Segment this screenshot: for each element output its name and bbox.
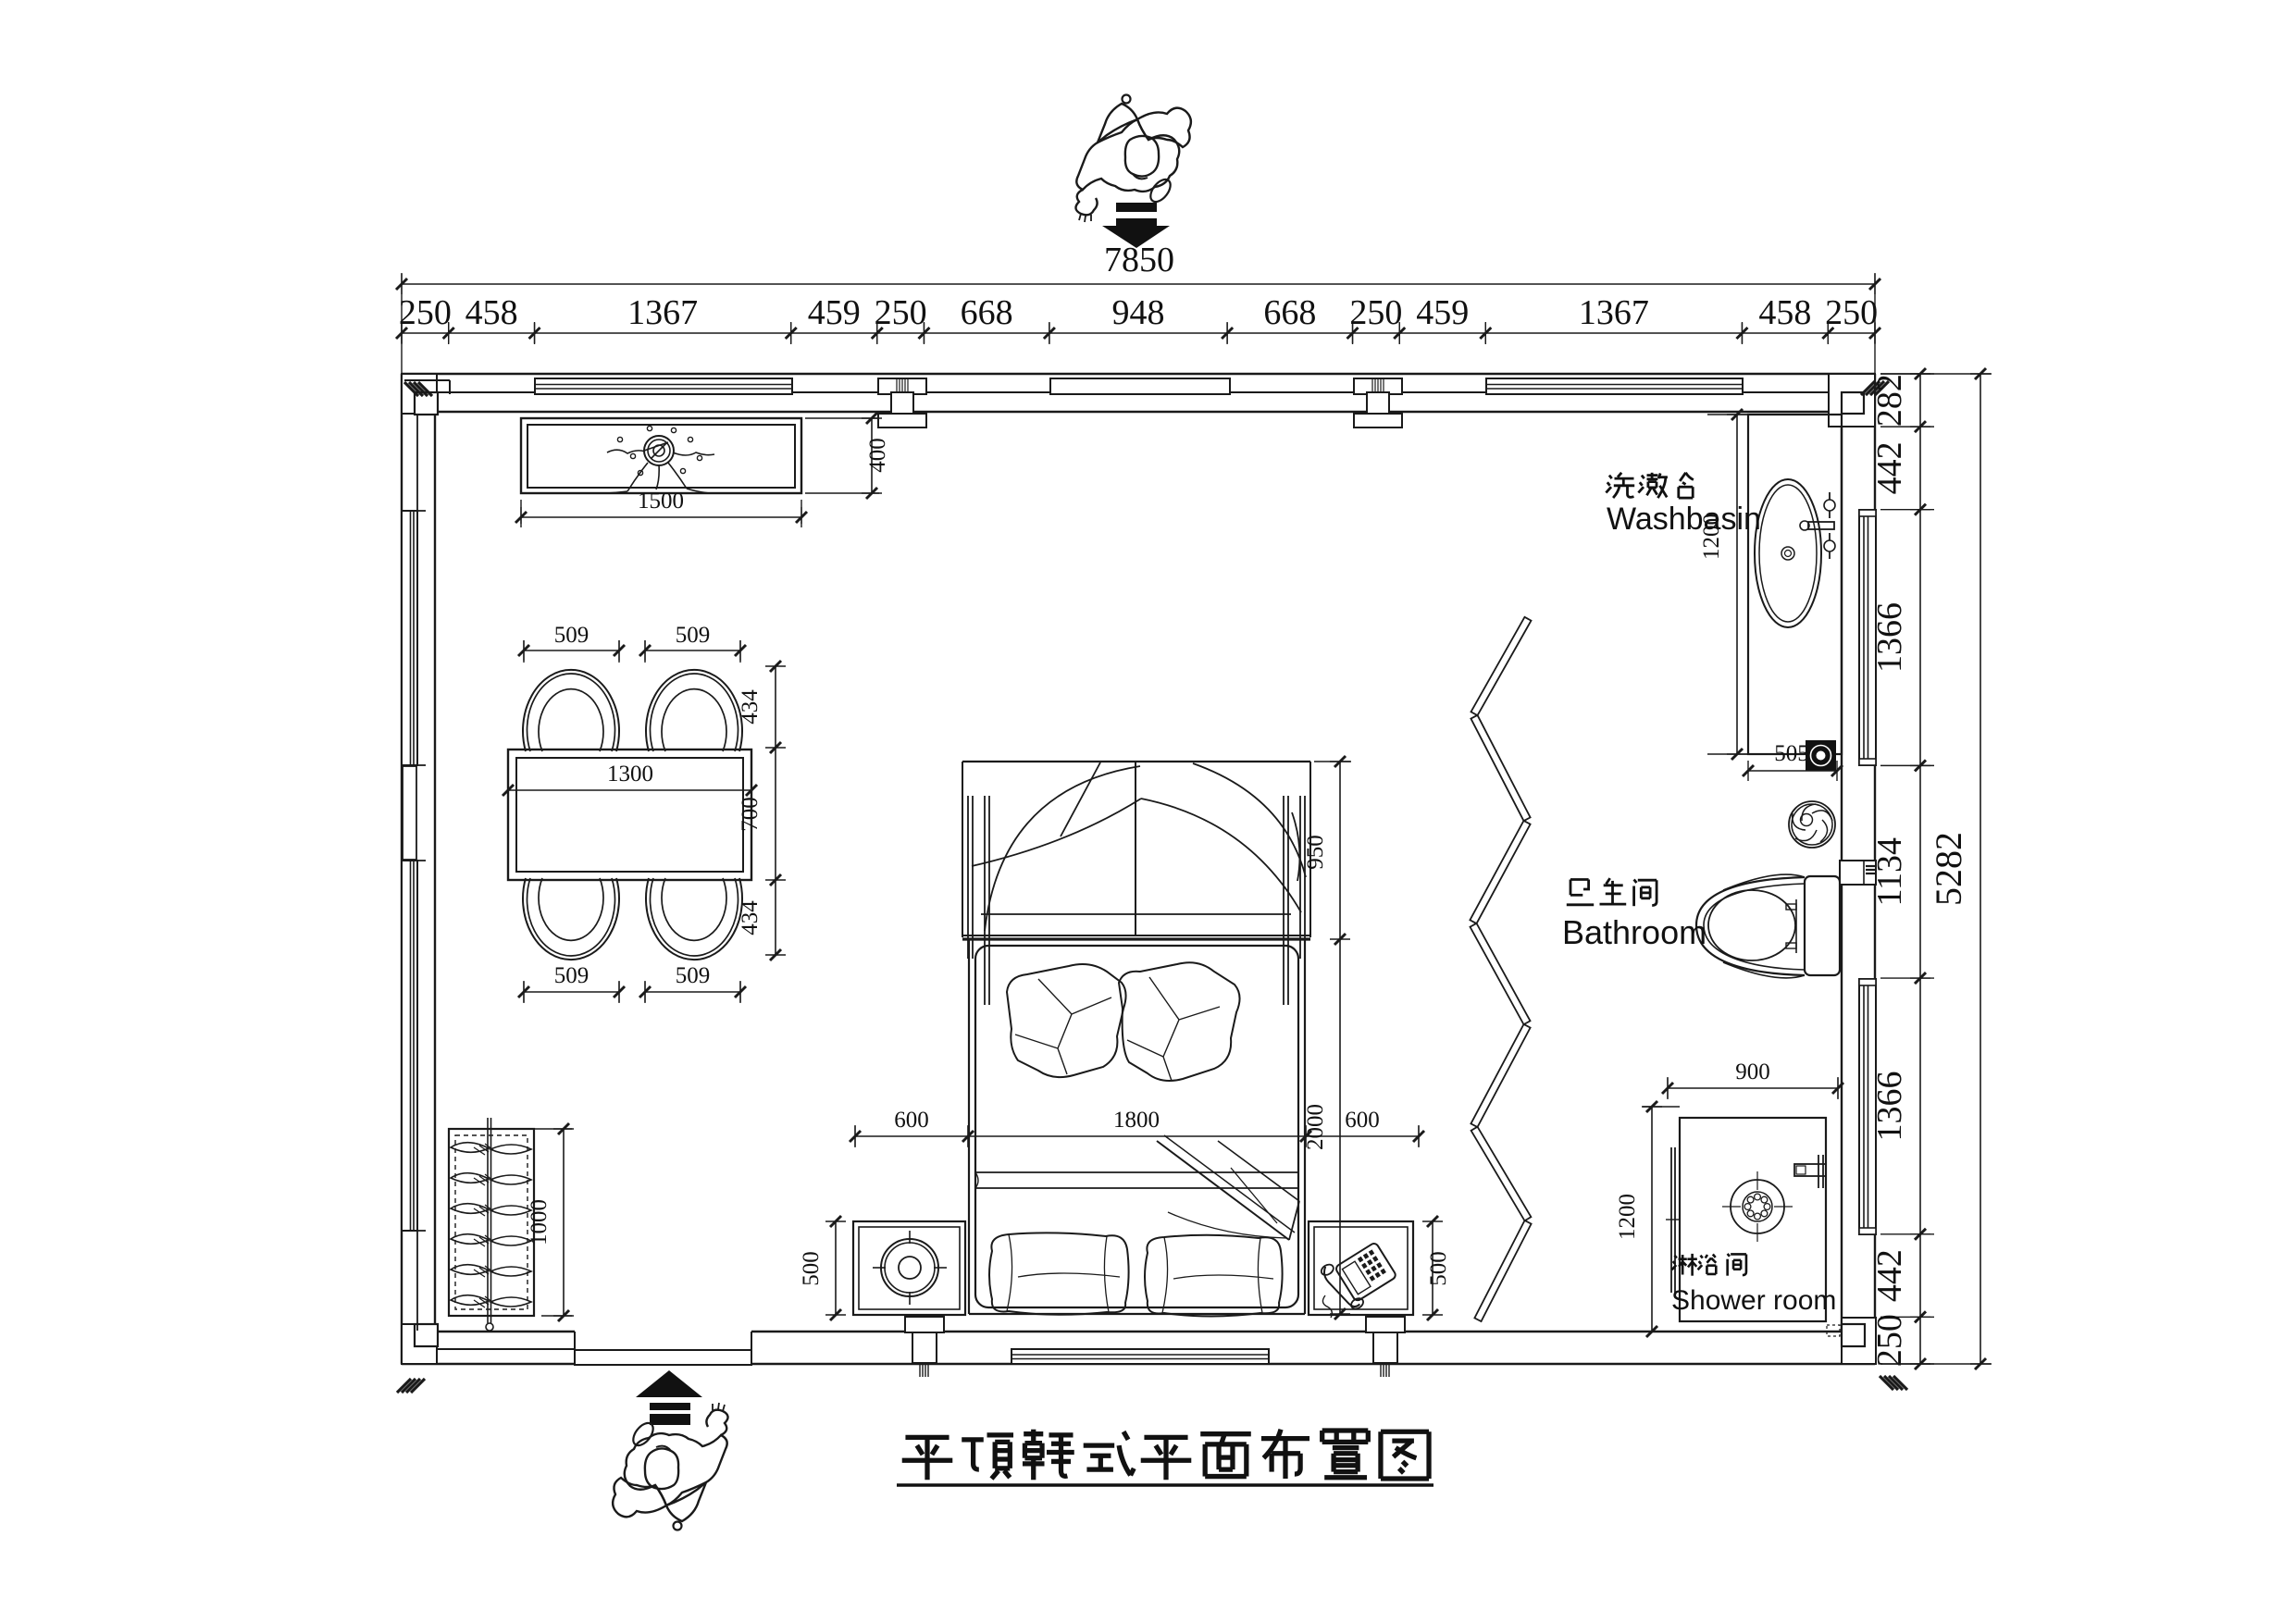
svg-text:Shower room: Shower room: [1671, 1285, 1836, 1316]
svg-text:1800: 1800: [1113, 1108, 1160, 1133]
svg-text:250: 250: [875, 293, 927, 332]
svg-text:668: 668: [961, 293, 1013, 332]
svg-text:900: 900: [1735, 1059, 1770, 1084]
svg-text:509: 509: [676, 623, 711, 648]
svg-text:2000: 2000: [1303, 1104, 1328, 1150]
svg-text:1500: 1500: [638, 489, 684, 514]
svg-text:1366: 1366: [1870, 602, 1909, 673]
svg-text:600: 600: [1345, 1108, 1380, 1133]
svg-text:434: 434: [738, 689, 763, 725]
svg-text:Bathroom: Bathroom: [1562, 913, 1706, 951]
svg-text:442: 442: [1870, 441, 1909, 494]
svg-text:700: 700: [738, 797, 763, 832]
svg-text:250: 250: [399, 293, 452, 332]
svg-text:950: 950: [1303, 835, 1328, 870]
svg-text:1367: 1367: [627, 293, 698, 332]
svg-text:458: 458: [1758, 293, 1811, 332]
svg-text:505: 505: [1774, 741, 1809, 766]
svg-text:442: 442: [1870, 1249, 1909, 1302]
svg-text:1367: 1367: [1579, 293, 1649, 332]
svg-text:500: 500: [1426, 1251, 1451, 1286]
svg-text:7850: 7850: [1104, 241, 1174, 279]
svg-text:459: 459: [1416, 293, 1469, 332]
svg-text:458: 458: [465, 293, 518, 332]
svg-text:668: 668: [1263, 293, 1316, 332]
svg-text:434: 434: [738, 900, 763, 935]
svg-text:1200: 1200: [1615, 1194, 1640, 1240]
svg-text:1000: 1000: [527, 1199, 552, 1245]
svg-text:5282: 5282: [1928, 832, 1969, 906]
svg-text:282: 282: [1870, 374, 1909, 427]
svg-text:250: 250: [1870, 1314, 1909, 1367]
svg-text:948: 948: [1112, 293, 1165, 332]
svg-text:1134: 1134: [1870, 837, 1909, 907]
svg-text:400: 400: [865, 438, 890, 473]
svg-text:509: 509: [554, 963, 590, 988]
svg-text:600: 600: [894, 1108, 929, 1133]
svg-text:1300: 1300: [607, 762, 653, 787]
svg-text:509: 509: [676, 963, 711, 988]
svg-text:509: 509: [554, 623, 590, 648]
svg-text:250: 250: [1825, 293, 1878, 332]
svg-text:459: 459: [808, 293, 861, 332]
svg-text:Washbasin: Washbasin: [1607, 502, 1761, 537]
svg-text:250: 250: [1349, 293, 1402, 332]
svg-text:500: 500: [799, 1251, 824, 1286]
svg-text:1366: 1366: [1870, 1071, 1909, 1141]
